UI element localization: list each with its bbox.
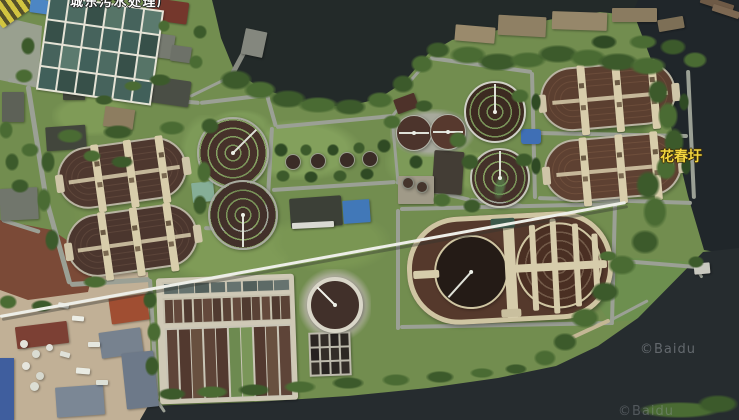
equipment: [104, 250, 110, 256]
blue-roof-building: [342, 199, 371, 224]
equipment: [619, 173, 624, 178]
tree-clump: [433, 193, 451, 207]
tree-clump: [189, 55, 203, 69]
lane-cell: [258, 280, 273, 290]
tree-clump: [193, 25, 207, 39]
tree-clump: [21, 37, 35, 55]
tree-clump: [274, 143, 288, 157]
road: [396, 209, 400, 330]
lane-cell: [274, 279, 289, 289]
equipment: [581, 155, 586, 160]
ruins: [498, 15, 547, 37]
walkway: [413, 270, 439, 279]
tree-clump: [377, 139, 391, 153]
basin-cell: [341, 361, 349, 373]
digester-tank: [396, 115, 432, 151]
basin-cell: [330, 334, 338, 346]
basin-cell: [76, 72, 96, 96]
tree-clump: [149, 74, 171, 86]
storage-tank: [30, 382, 39, 391]
basin-cell: [60, 46, 80, 70]
blue-wall: [0, 358, 14, 420]
basin-cell: [63, 23, 83, 47]
lane-cell: [232, 297, 241, 320]
tree-clump: [284, 381, 316, 393]
equipment: [581, 105, 586, 110]
tree-clump: [147, 322, 161, 342]
metal-warehouse: [55, 384, 105, 417]
basin-cell: [321, 362, 329, 374]
equipment: [132, 225, 138, 231]
tree-clump: [383, 115, 401, 129]
lane-cell: [174, 299, 183, 322]
tree-clump: [449, 132, 467, 148]
tree-clump: [531, 93, 541, 111]
basin-cell: [38, 66, 58, 90]
scraper-arm: [232, 129, 257, 154]
tree-clump: [698, 395, 738, 413]
truck: [72, 315, 84, 321]
truck: [96, 380, 108, 385]
tree-clump: [0, 295, 17, 309]
lane-cell: [261, 296, 270, 319]
clarifier-tank: [307, 277, 363, 333]
tree-clump: [415, 100, 433, 112]
basin-cell: [320, 334, 328, 346]
tree-clump: [571, 308, 599, 328]
tree-clump: [95, 95, 113, 105]
lane-cell: [164, 299, 173, 322]
equipment: [616, 102, 621, 107]
tree-clump: [15, 69, 33, 83]
lane-cell: [223, 297, 232, 320]
tree-clump: [83, 276, 107, 288]
tree-clump: [353, 142, 365, 154]
small-tank: [402, 177, 414, 189]
tree-clump: [57, 129, 83, 143]
equipment: [169, 241, 175, 247]
small-tank: [339, 152, 355, 168]
basin-cell: [48, 0, 68, 20]
basin-cell: [123, 7, 143, 31]
basin-cell: [120, 31, 140, 55]
equipment: [101, 229, 107, 235]
tree-clump: [553, 333, 577, 351]
basin-cell: [310, 334, 318, 346]
basin-cell: [45, 20, 65, 44]
basin-cell: [331, 362, 339, 374]
dark-basin-grid: [308, 331, 352, 376]
center-drive: [241, 213, 245, 217]
tree-clump: [11, 179, 29, 193]
tree-clump: [648, 80, 668, 104]
lane-cell: [184, 299, 193, 322]
basin-cell: [82, 25, 102, 49]
tree-clump: [511, 89, 529, 103]
tree-clump: [392, 75, 414, 93]
gray-building: [2, 92, 24, 122]
lane-cell: [242, 297, 251, 320]
equipment: [614, 80, 619, 85]
lane-cell: [213, 298, 222, 321]
small-tank: [310, 153, 326, 169]
tree-clump: [683, 52, 707, 68]
center-drive: [412, 131, 416, 135]
lane-cell: [281, 295, 290, 318]
end-platform: [55, 174, 65, 193]
equipment: [166, 220, 172, 226]
equipment: [579, 83, 584, 88]
tree-clump: [591, 35, 617, 49]
map-label-place: 花春圩: [660, 146, 702, 166]
ruins: [454, 24, 495, 43]
tree-clump: [631, 230, 659, 254]
tree-clump: [159, 121, 185, 135]
tree-clump: [426, 371, 454, 383]
settling-basin-grid: [36, 0, 164, 106]
tree-clump: [409, 155, 423, 169]
tree-clump: [5, 153, 19, 171]
scraper-arm: [494, 84, 496, 112]
tree-clump: [658, 102, 678, 130]
tree-clump: [304, 171, 318, 183]
basin-cell: [311, 362, 319, 374]
tree-clump: [643, 196, 667, 228]
tree-clump: [21, 143, 39, 157]
basin-cell: [331, 348, 339, 360]
map-label-clipped: 城东污水处理厂: [70, 0, 172, 10]
tree-clump: [327, 144, 339, 156]
storage-tank: [32, 350, 40, 358]
center-drive: [231, 151, 235, 155]
end-platform: [542, 166, 552, 185]
tree-clump: [679, 93, 689, 111]
end-platform: [64, 242, 74, 261]
center-drive: [469, 270, 473, 274]
tree-clump: [505, 364, 527, 374]
tree-clump: [37, 188, 51, 212]
tree-clump: [599, 251, 617, 261]
tree-clump: [461, 154, 479, 170]
satellite-map[interactable]: 城东污水处理厂 花春圩 ©Baidu ©Baidu: [0, 0, 739, 420]
tree-clump: [470, 368, 494, 378]
lane-cell: [271, 296, 280, 319]
lane-cell: [252, 296, 261, 319]
equipment: [583, 176, 588, 181]
tree-clump: [629, 35, 657, 49]
tree-clump: [201, 118, 219, 134]
tree-clump: [298, 97, 338, 113]
equipment: [161, 173, 167, 179]
tree-clump: [360, 168, 374, 180]
equipment: [652, 149, 657, 154]
basin-cell: [117, 54, 137, 78]
truck: [76, 367, 90, 374]
tree-clump: [111, 156, 133, 168]
storage-tank: [46, 344, 53, 351]
aeration-band: [163, 294, 292, 324]
basin-cell: [311, 348, 319, 360]
tree-clump: [534, 350, 556, 366]
tree-clump: [193, 195, 207, 215]
baidu-watermark: ©Baidu: [640, 342, 696, 357]
basin-cell: [101, 28, 121, 52]
storage-tank: [22, 362, 30, 370]
basin-cell: [341, 347, 349, 359]
scraper-arm: [414, 132, 429, 134]
storage-tank: [20, 340, 28, 348]
tree-clump: [333, 170, 347, 182]
lane-cell: [193, 298, 202, 321]
truck: [88, 342, 100, 347]
tree-clump: [158, 388, 186, 400]
basin-cell: [321, 348, 329, 360]
equipment: [158, 152, 164, 158]
tree-clump: [591, 282, 619, 302]
tree-clump: [45, 229, 59, 251]
basin-cell: [41, 43, 61, 67]
tree-clump: [124, 81, 142, 91]
scraper-arm: [448, 271, 472, 298]
tree-clump: [300, 144, 312, 156]
tree-clump: [426, 42, 450, 58]
lane-cell: [227, 281, 242, 291]
tree-clump: [103, 125, 133, 139]
tree-clump: [382, 374, 410, 386]
tree-clump: [197, 161, 211, 183]
tree-clump: [276, 170, 290, 182]
lane-cell: [211, 282, 226, 292]
equipment: [94, 161, 100, 167]
basin-cell: [57, 69, 77, 93]
equipment: [97, 182, 103, 188]
tree-clump: [196, 386, 228, 398]
tree-clump: [367, 92, 393, 108]
tree-clump: [238, 384, 270, 396]
ruins: [552, 11, 608, 31]
scraper-arm: [242, 215, 244, 247]
tree-clump: [0, 121, 13, 139]
ruins: [612, 8, 657, 22]
tree-clump: [630, 57, 666, 75]
dark-long-building: [432, 150, 465, 195]
tree-clump: [463, 199, 481, 213]
basin-cell: [340, 333, 348, 345]
tree-clump: [334, 99, 366, 115]
basin-cell: [139, 33, 159, 57]
small-tank: [416, 181, 428, 193]
lane-cell: [203, 298, 212, 321]
center-drive: [333, 303, 337, 307]
storage-tank: [36, 372, 44, 380]
equipment: [135, 246, 141, 252]
basin-cell: [98, 51, 118, 75]
basin-cell: [79, 48, 99, 72]
walkway: [501, 308, 521, 317]
lane-cell: [242, 280, 257, 290]
tree-clump: [531, 157, 541, 175]
tree-clump: [41, 151, 55, 173]
center-drive: [498, 176, 502, 180]
tree-clump: [158, 20, 170, 32]
baidu-watermark-2: ©Baidu: [618, 404, 674, 419]
tree-clump: [332, 377, 364, 389]
tree-clump: [83, 150, 101, 162]
tree-clump: [145, 356, 159, 376]
blue-canopy: [521, 129, 541, 144]
center-drive: [493, 110, 497, 114]
clarifier-tank: [208, 180, 278, 250]
equipment: [129, 178, 135, 184]
tree-clump: [688, 256, 704, 268]
equipment: [617, 152, 622, 157]
tree-clump: [636, 171, 660, 199]
